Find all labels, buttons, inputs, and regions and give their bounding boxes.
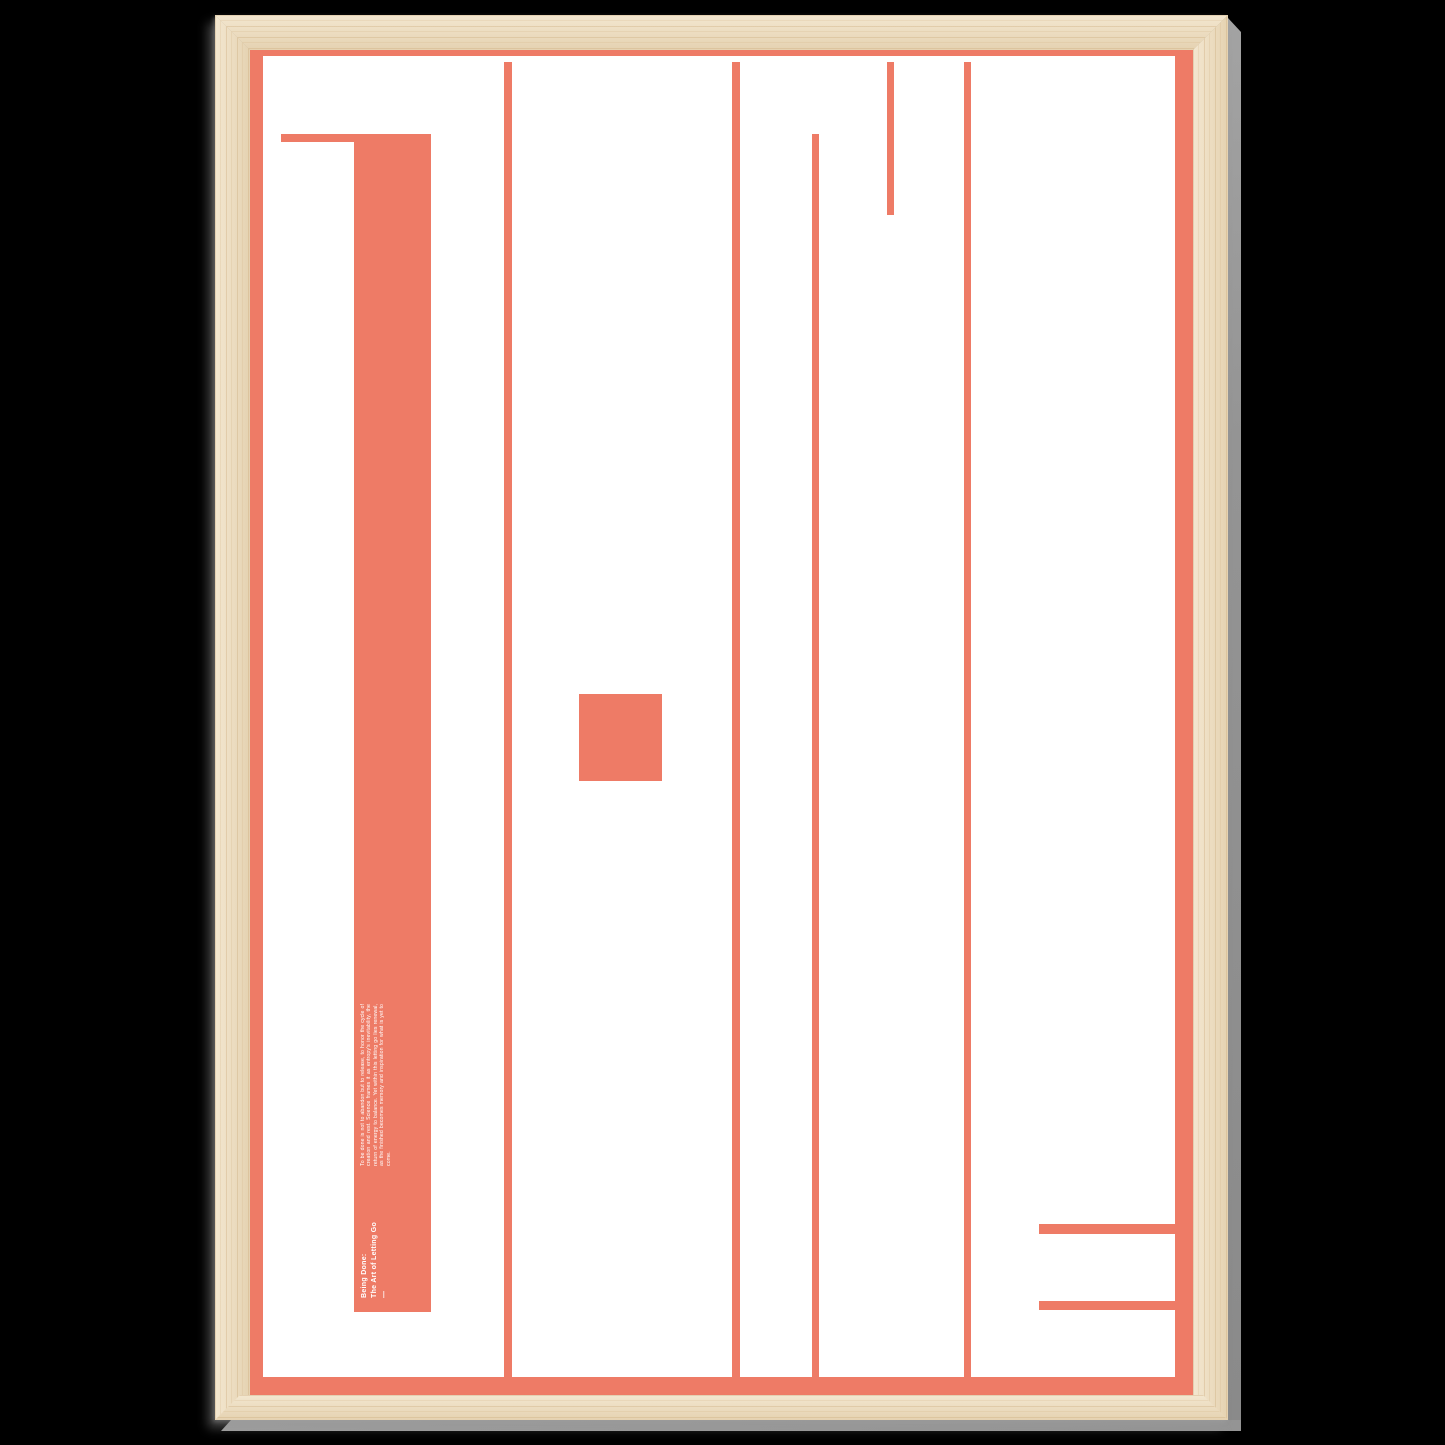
- caption-body-text: To be done is not to abandon but to rele…: [360, 1004, 392, 1166]
- caption-divider-dash: —: [380, 1222, 390, 1298]
- caption-title-line2: The Art of Letting Go: [370, 1222, 380, 1298]
- frame-side-edge-right: [1228, 18, 1241, 1430]
- poster-content-area: Being Done: The Art of Letting Go — To b…: [263, 56, 1175, 1377]
- letter-n-middle-stroke: [812, 134, 819, 1383]
- caption-title-line1: Being Done:: [360, 1222, 370, 1298]
- frame-rail-bottom: [215, 1395, 1228, 1420]
- letter-e-upper-arm: [1039, 1224, 1188, 1234]
- frame-rail-left: [215, 15, 250, 1420]
- caption-title-block: Being Done: The Art of Letting Go —: [360, 1222, 390, 1298]
- frame-side-edge-bottom: [221, 1420, 1241, 1431]
- letter-d-right-divider: [504, 62, 512, 1383]
- product-photo-background: Being Done: The Art of Letting Go — To b…: [0, 0, 1445, 1445]
- frame-rail-top: [215, 15, 1228, 50]
- letter-d-top-line: [281, 134, 354, 142]
- wooden-picture-frame: Being Done: The Art of Letting Go — To b…: [215, 15, 1228, 1420]
- poster-paper: Being Done: The Art of Letting Go — To b…: [250, 50, 1193, 1395]
- letter-o-right-divider: [732, 62, 740, 1383]
- frame-rail-right: [1193, 15, 1228, 1420]
- letter-d-stem-bar: Being Done: The Art of Letting Go — To b…: [354, 134, 431, 1312]
- letter-o-counter-square: [579, 694, 662, 781]
- rotated-caption: Being Done: The Art of Letting Go — To b…: [354, 134, 431, 1312]
- letter-n-right-divider: [964, 62, 971, 1383]
- letter-n-top-stub: [887, 62, 894, 215]
- letter-e-lower-arm: [1039, 1301, 1188, 1310]
